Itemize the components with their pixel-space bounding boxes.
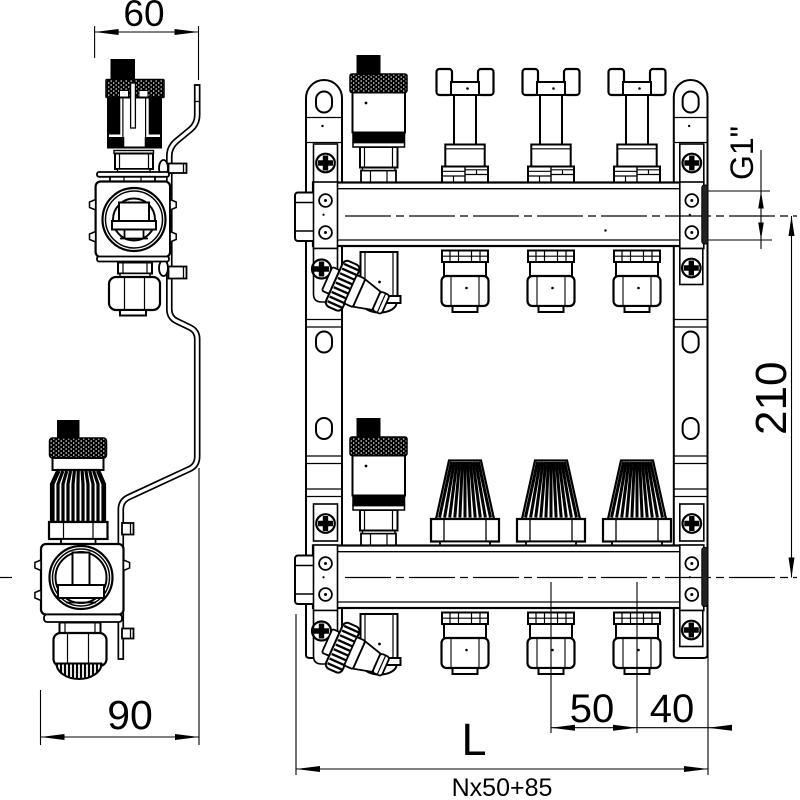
svg-text:G1": G1"	[724, 126, 760, 180]
svg-text:60: 60	[123, 0, 164, 34]
svg-text:210: 210	[747, 362, 796, 435]
svg-text:50: 50	[570, 687, 615, 731]
svg-text:Nx50+85: Nx50+85	[452, 774, 553, 800]
svg-text:90: 90	[107, 692, 153, 738]
svg-text:40: 40	[650, 687, 695, 731]
svg-text:L: L	[461, 714, 486, 765]
